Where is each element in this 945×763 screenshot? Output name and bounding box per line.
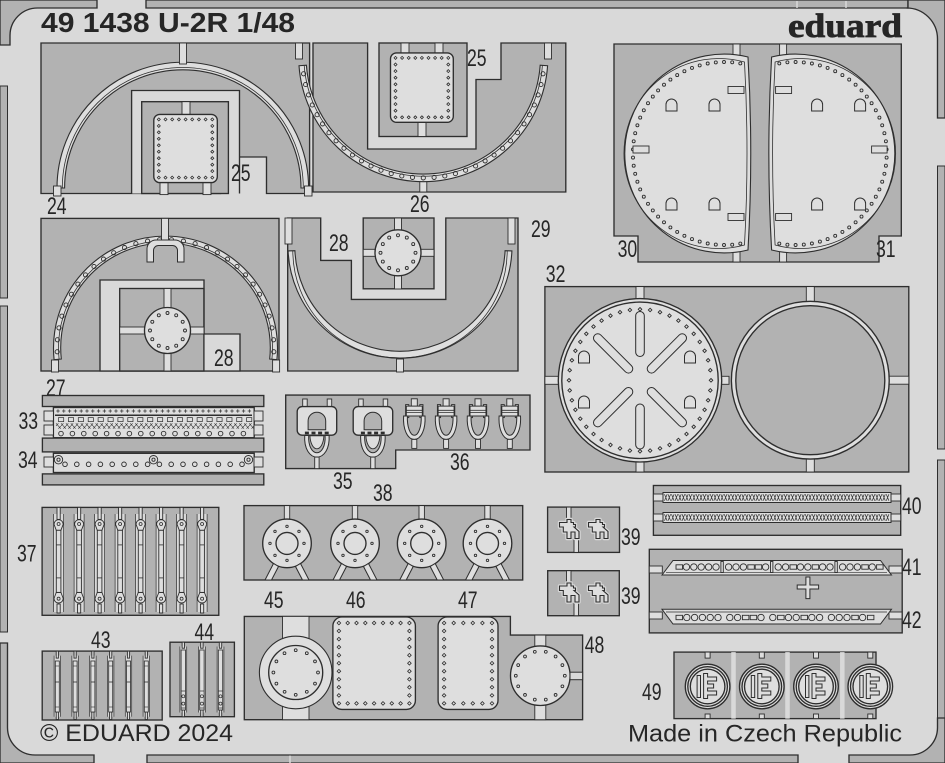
svg-text:eduard: eduard (788, 8, 902, 45)
svg-text:44: 44 (195, 619, 215, 646)
svg-text:29: 29 (531, 216, 551, 243)
svg-text:25: 25 (231, 160, 251, 187)
svg-text:26: 26 (410, 191, 430, 218)
svg-text:© EDUARD 2024: © EDUARD 2024 (40, 720, 233, 747)
svg-text:34: 34 (18, 447, 38, 474)
svg-text:24: 24 (47, 193, 67, 220)
svg-text:35: 35 (333, 468, 353, 495)
svg-text:Made in Czech Republic: Made in Czech Republic (628, 720, 902, 747)
svg-text:28: 28 (214, 345, 234, 372)
svg-text:38: 38 (373, 480, 393, 507)
svg-text:28: 28 (329, 230, 349, 257)
svg-text:39: 39 (621, 583, 641, 610)
svg-text:49: 49 (642, 679, 662, 706)
svg-text:49 1438 U-2R 1/48: 49 1438 U-2R 1/48 (41, 7, 295, 38)
svg-text:46: 46 (346, 587, 366, 614)
svg-text:32: 32 (546, 261, 566, 288)
svg-text:40: 40 (902, 493, 922, 520)
svg-text:36: 36 (450, 449, 470, 476)
svg-text:37: 37 (17, 541, 37, 568)
svg-text:39: 39 (621, 524, 641, 551)
svg-text:41: 41 (902, 554, 922, 581)
svg-text:48: 48 (585, 632, 605, 659)
svg-text:25: 25 (467, 45, 487, 72)
svg-text:42: 42 (902, 607, 922, 634)
svg-text:30: 30 (618, 236, 638, 263)
svg-text:33: 33 (19, 408, 39, 435)
svg-text:45: 45 (264, 587, 284, 614)
svg-text:43: 43 (91, 627, 111, 654)
svg-text:47: 47 (458, 587, 478, 614)
svg-text:31: 31 (876, 236, 896, 263)
